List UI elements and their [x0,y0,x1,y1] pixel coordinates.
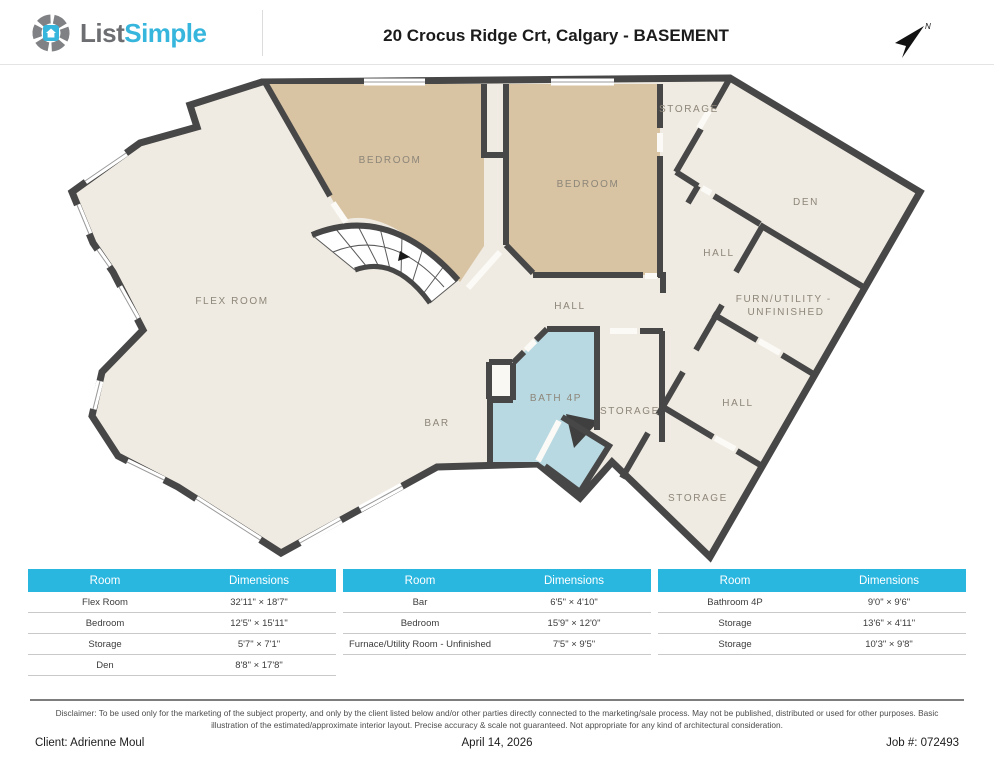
cell-room: Bar [343,597,497,608]
col-room: Room [28,575,182,587]
disclaimer-text: Disclaimer: To be used only for the mark… [45,707,949,731]
table-3-header: Room Dimensions [658,569,966,592]
cell-room: Storage [658,639,812,650]
cell-dim: 15'9" × 12'0" [497,618,651,629]
cell-dim: 7'5" × 9'5" [497,639,651,650]
cell-room: Den [28,660,182,671]
table-2-header: Room Dimensions [343,569,651,592]
col-room: Room [658,575,812,587]
cell-room: Storage [658,618,812,629]
cell-room: Bedroom [343,618,497,629]
north-arrow-icon: N [888,14,936,63]
table-row: Bedroom12'5" × 15'11" [28,613,336,634]
table-row: Furnace/Utility Room - Unfinished7'5" × … [343,634,651,655]
table-group-1: Room Dimensions Flex Room32'11" × 18'7" … [28,569,336,676]
col-room: Room [343,575,497,587]
cell-room: Flex Room [28,597,182,608]
label-bath: BATH 4P [530,393,582,404]
table-row: Storage13'6" × 4'11" [658,613,966,634]
logo-text-simple: Simple [124,18,206,48]
table-1-header: Room Dimensions [28,569,336,592]
cell-room: Storage [28,639,182,650]
floor-plan: FLEX ROOM BEDROOM BEDROOM STORAGE DEN HA… [0,66,994,566]
header: ListSimple 20 Crocus Ridge Crt, Calgary … [0,0,994,65]
label-flex-room: FLEX ROOM [195,296,268,307]
cell-dim: 12'5" × 15'11" [182,618,336,629]
label-storage-top: STORAGE [659,104,719,115]
header-divider [262,10,263,56]
logo-shutter-icon [30,12,72,54]
table-row: Bar6'5" × 4'10" [343,592,651,613]
cell-room: Furnace/Utility Room - Unfinished [343,639,497,650]
footer-divider [30,699,964,701]
svg-text:N: N [925,22,931,31]
dimension-tables: Room Dimensions Flex Room32'11" × 18'7" … [28,569,966,676]
logo-text-list: List [80,18,124,48]
cell-dim: 10'3" × 9'8" [812,639,966,650]
cell-dim: 8'8" × 17'8" [182,660,336,671]
cell-dim: 13'6" × 4'11" [812,618,966,629]
label-bedroom-left: BEDROOM [359,155,422,166]
label-hall-upper: HALL [703,248,734,259]
table-group-2: Room Dimensions Bar6'5" × 4'10" Bedroom1… [343,569,651,676]
col-dimensions: Dimensions [182,575,336,587]
table-row: Storage10'3" × 9'8" [658,634,966,655]
cell-room: Bedroom [28,618,182,629]
cell-dim: 5'7" × 7'1" [182,639,336,650]
table-row: Flex Room32'11" × 18'7" [28,592,336,613]
logo-text: ListSimple [80,18,206,49]
cell-dim: 9'0" × 9'6" [812,597,966,608]
label-storage-bottom: STORAGE [668,493,728,504]
label-hall-center: HALL [554,301,585,312]
table-row: Bedroom15'9" × 12'0" [343,613,651,634]
label-den: DEN [793,197,819,208]
bath-alcove [489,362,513,399]
table-row: Den8'8" × 17'8" [28,655,336,676]
footer-row: Client: Adrienne Moul April 14, 2026 Job… [35,737,959,749]
col-dimensions: Dimensions [497,575,651,587]
label-storage-mid: STORAGE [600,406,660,417]
label-bar: BAR [424,418,449,429]
label-hall-lower: HALL [722,398,753,409]
col-dimensions: Dimensions [812,575,966,587]
table-group-3: Room Dimensions Bathroom 4P9'0" × 9'6" S… [658,569,966,676]
table-row: Storage5'7" × 7'1" [28,634,336,655]
table-row: Bathroom 4P9'0" × 9'6" [658,592,966,613]
listsimple-logo: ListSimple [30,12,206,54]
page-title: 20 Crocus Ridge Crt, Calgary - BASEMENT [300,26,812,46]
footer-date: April 14, 2026 [35,737,959,749]
label-bedroom-right: BEDROOM [557,179,620,190]
cell-room: Bathroom 4P [658,597,812,608]
cell-dim: 6'5" × 4'10" [497,597,651,608]
cell-dim: 32'11" × 18'7" [182,597,336,608]
